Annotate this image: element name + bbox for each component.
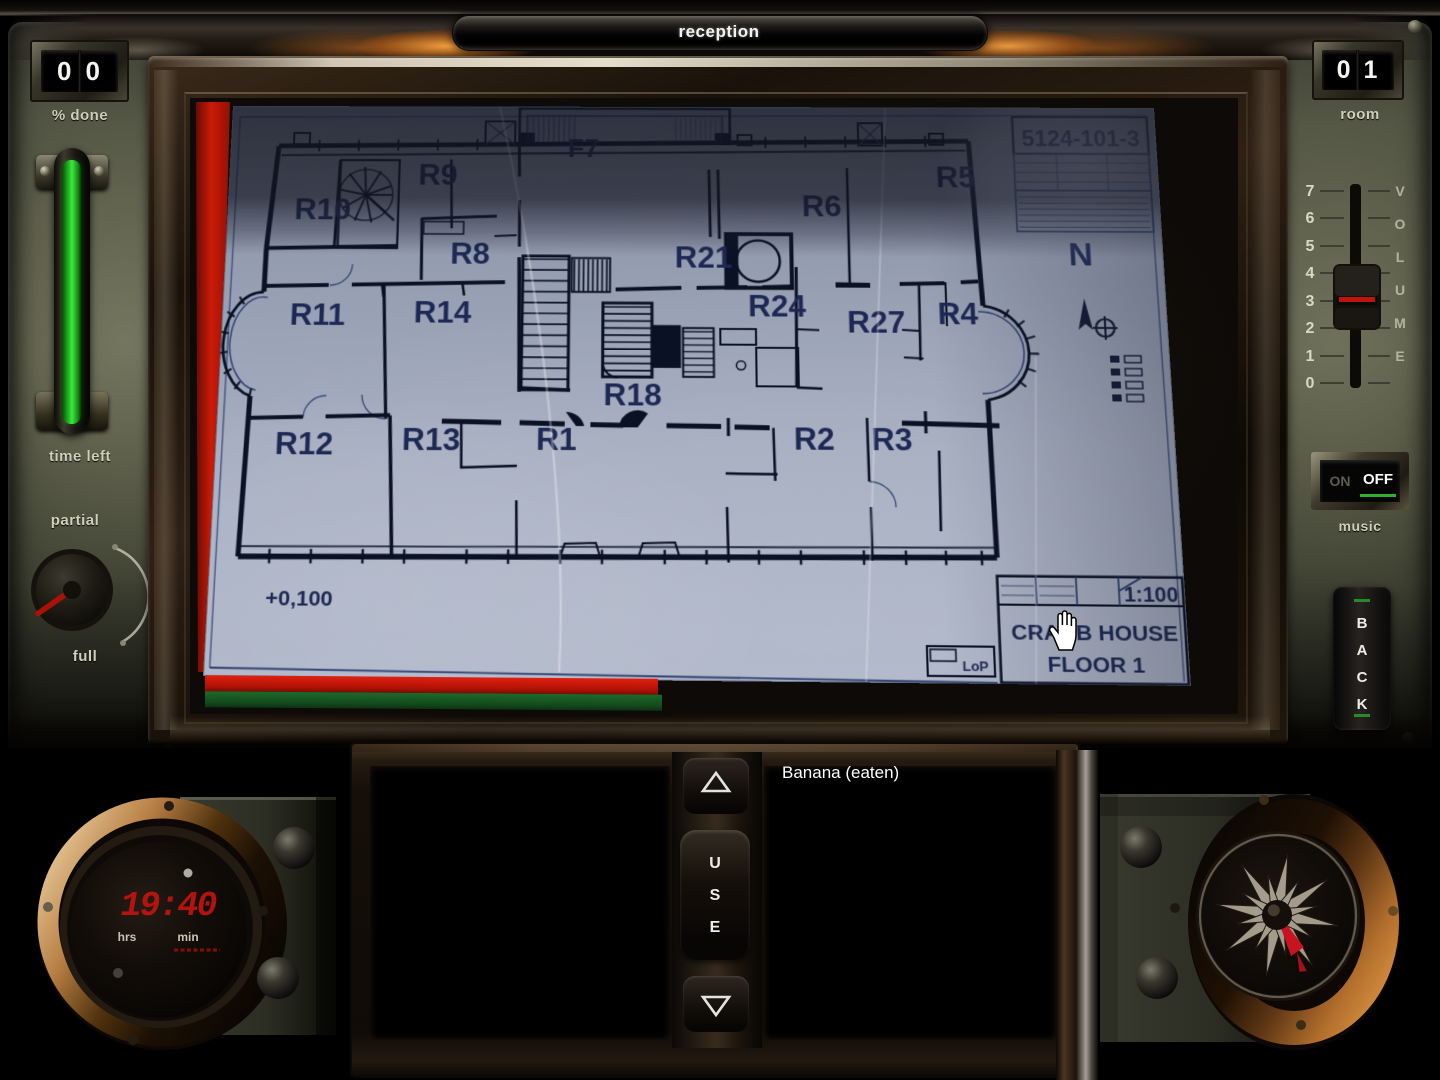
svg-text:R14: R14 bbox=[413, 296, 472, 330]
svg-text:0: 0 bbox=[1306, 375, 1315, 392]
svg-text:7: 7 bbox=[1306, 183, 1315, 200]
svg-text:+0,100: +0,100 bbox=[265, 587, 333, 612]
svg-text:M: M bbox=[1394, 315, 1406, 331]
svg-text:5: 5 bbox=[1306, 238, 1315, 255]
svg-text:R27: R27 bbox=[847, 306, 906, 340]
svg-text:2: 2 bbox=[1306, 320, 1315, 337]
svg-text:L: L bbox=[1396, 249, 1405, 265]
svg-text:R11: R11 bbox=[289, 298, 346, 332]
svg-text:V: V bbox=[1395, 183, 1405, 199]
svg-text:R24: R24 bbox=[748, 290, 807, 324]
svg-text:E: E bbox=[1395, 348, 1404, 364]
svg-text:6: 6 bbox=[1306, 210, 1315, 227]
svg-text:1: 1 bbox=[1306, 348, 1315, 365]
svg-text:3: 3 bbox=[1306, 293, 1315, 310]
svg-text:R18: R18 bbox=[603, 378, 661, 413]
svg-text:min: min bbox=[177, 930, 198, 944]
svg-text:19:40: 19:40 bbox=[117, 886, 220, 926]
svg-text:R2: R2 bbox=[793, 422, 835, 457]
svg-text:4: 4 bbox=[1306, 265, 1315, 282]
svg-text:R1: R1 bbox=[536, 422, 577, 457]
svg-text:U: U bbox=[1395, 282, 1405, 298]
svg-text:hrs: hrs bbox=[118, 930, 137, 944]
svg-text:O: O bbox=[1395, 216, 1406, 232]
svg-text:R3: R3 bbox=[871, 423, 913, 458]
svg-text:R12: R12 bbox=[274, 427, 334, 462]
svg-text:R13: R13 bbox=[401, 422, 460, 457]
